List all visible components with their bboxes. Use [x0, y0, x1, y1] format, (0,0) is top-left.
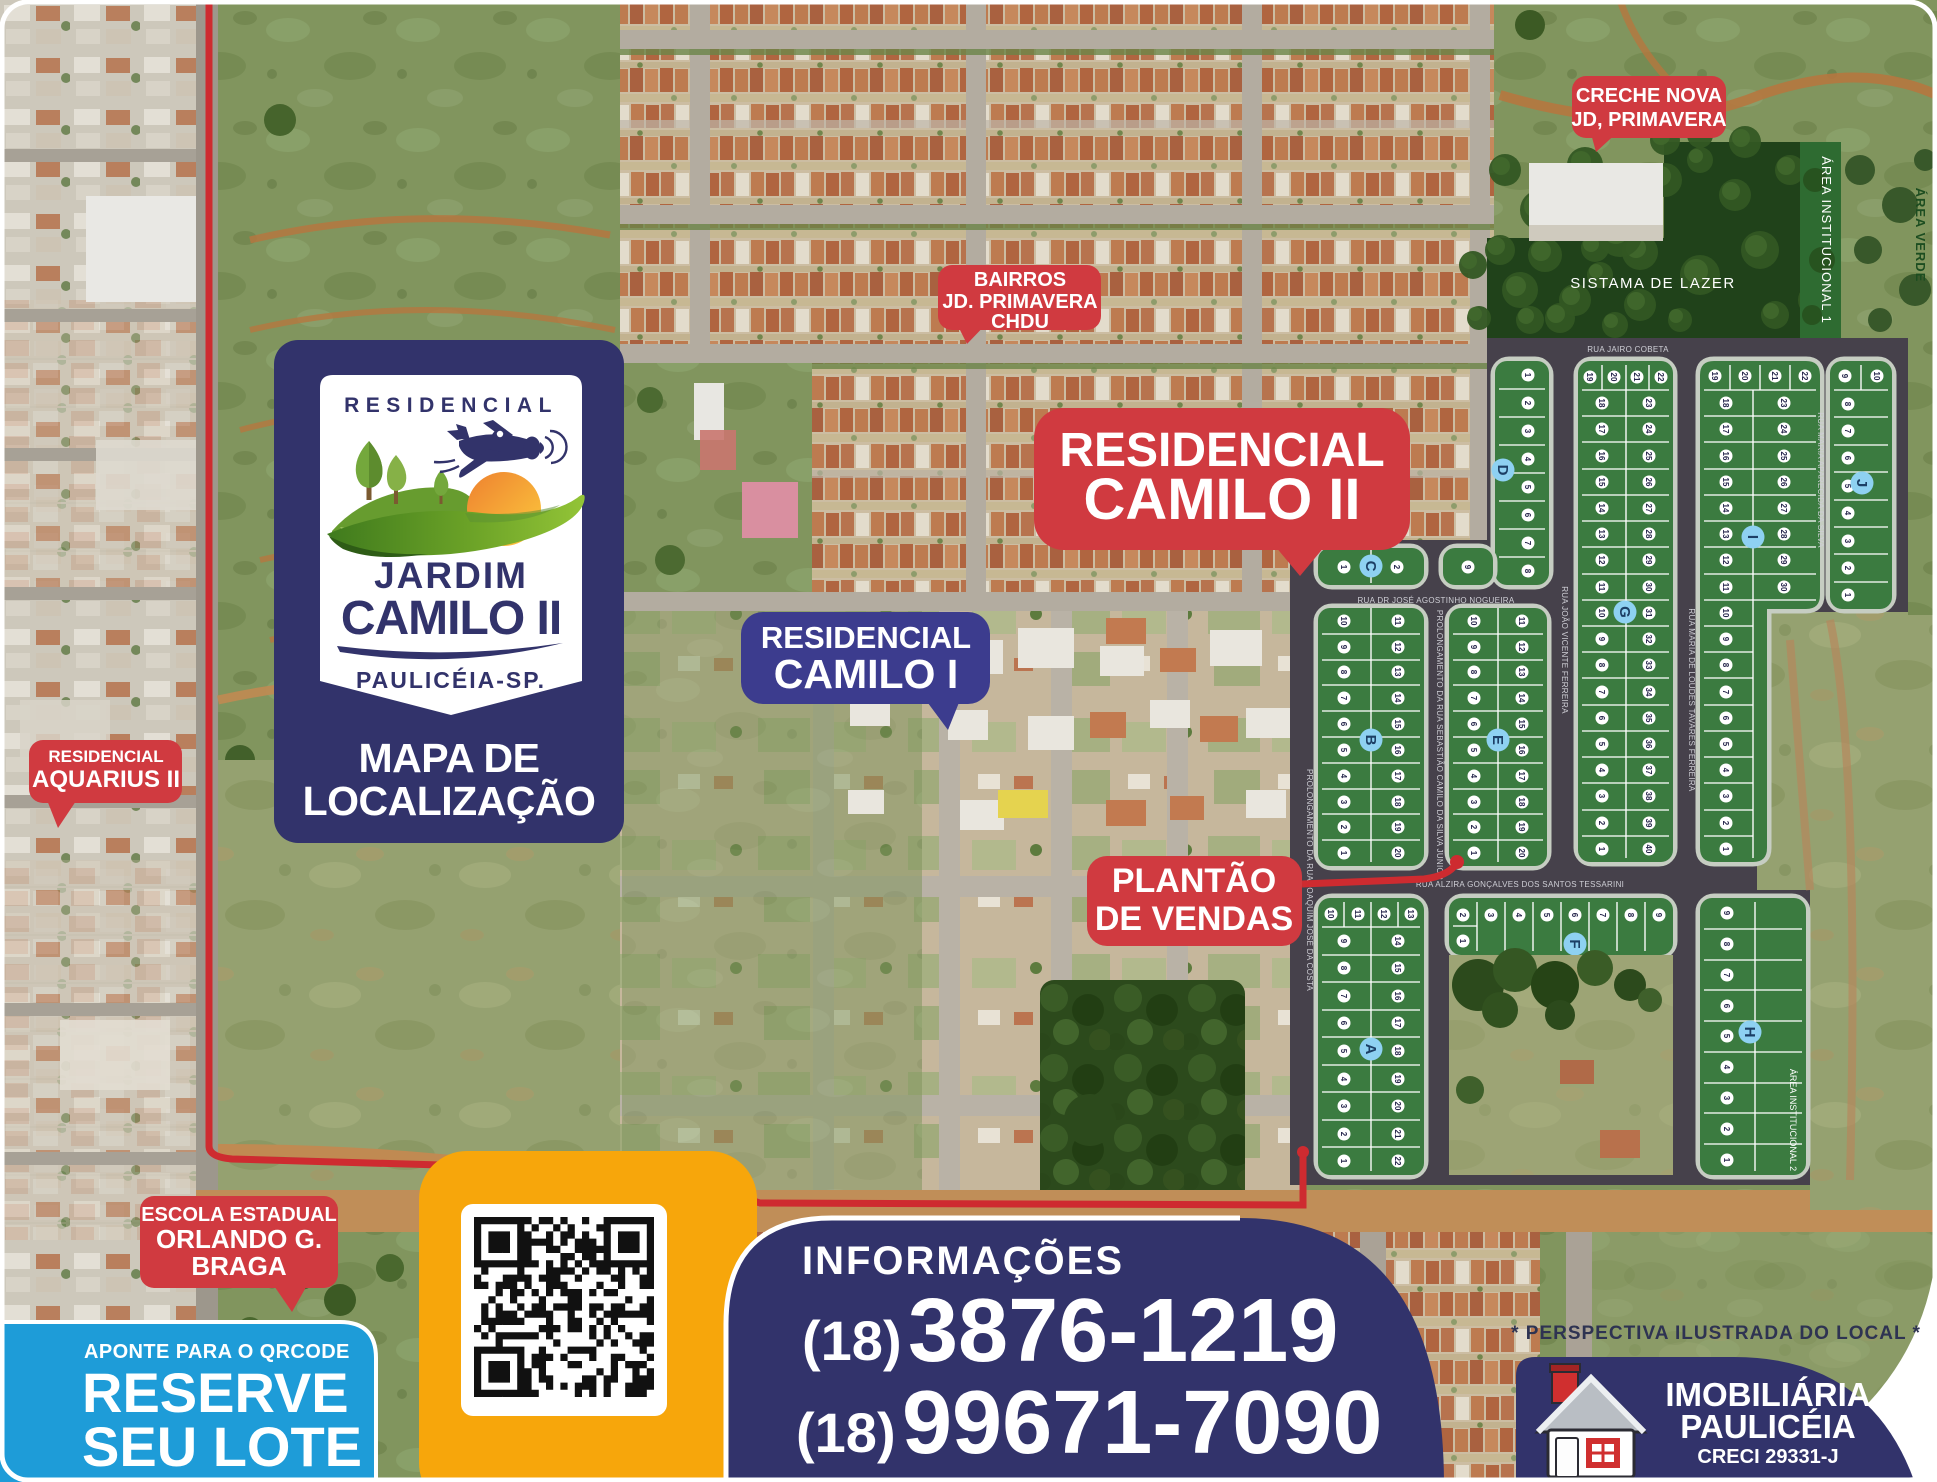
- svg-text:SISTAMA DE LAZER: SISTAMA DE LAZER: [1570, 275, 1735, 292]
- svg-text:4: 4: [1722, 1065, 1731, 1070]
- svg-text:35: 35: [1644, 714, 1653, 723]
- svg-text:10: 10: [1872, 372, 1881, 381]
- svg-text:26: 26: [1644, 478, 1653, 487]
- svg-text:14: 14: [1393, 694, 1402, 703]
- svg-text:8: 8: [1339, 670, 1348, 675]
- svg-text:99671-7090: 99671-7090: [902, 1373, 1382, 1473]
- svg-text:8: 8: [1721, 663, 1730, 668]
- svg-text:16: 16: [1721, 452, 1730, 461]
- svg-text:7: 7: [1843, 429, 1852, 434]
- svg-text:7: 7: [1339, 994, 1348, 999]
- svg-text:F: F: [1566, 939, 1583, 948]
- svg-text:13: 13: [1406, 910, 1415, 919]
- svg-text:6: 6: [1469, 722, 1478, 727]
- svg-text:10: 10: [1469, 617, 1478, 626]
- svg-text:10: 10: [1339, 617, 1348, 626]
- svg-text:1: 1: [1339, 1159, 1348, 1164]
- svg-text:6: 6: [1570, 913, 1579, 918]
- svg-text:2: 2: [1721, 821, 1730, 826]
- svg-text:18: 18: [1721, 399, 1730, 408]
- svg-text:5: 5: [1721, 742, 1730, 747]
- svg-text:(18): (18): [796, 1401, 896, 1464]
- svg-text:16: 16: [1597, 452, 1606, 461]
- svg-text:11: 11: [1721, 583, 1730, 592]
- svg-text:9: 9: [1339, 939, 1348, 944]
- svg-text:3: 3: [1523, 429, 1532, 434]
- svg-text:27: 27: [1779, 504, 1788, 513]
- svg-text:36: 36: [1644, 740, 1653, 749]
- svg-text:10: 10: [1597, 609, 1606, 618]
- svg-text:MAPA DE: MAPA DE: [359, 735, 540, 781]
- svg-text:ÁREA INSTITUCIONAL 1: ÁREA INSTITUCIONAL 1: [1819, 156, 1834, 324]
- svg-text:7: 7: [1597, 690, 1606, 695]
- svg-text:7: 7: [1523, 541, 1532, 546]
- svg-text:12: 12: [1393, 643, 1402, 652]
- svg-text:9: 9: [1469, 645, 1478, 650]
- svg-text:8: 8: [1523, 569, 1532, 574]
- svg-text:23: 23: [1644, 399, 1653, 408]
- svg-text:CRECHE NOVA: CRECHE NOVA: [1576, 85, 1722, 107]
- svg-text:29: 29: [1779, 556, 1788, 565]
- svg-text:3: 3: [1486, 913, 1495, 918]
- svg-text:5: 5: [1523, 485, 1532, 490]
- svg-text:1: 1: [1523, 373, 1532, 378]
- svg-text:7: 7: [1339, 696, 1348, 701]
- svg-text:4: 4: [1514, 913, 1523, 918]
- svg-text:22: 22: [1393, 1157, 1402, 1166]
- svg-text:8: 8: [1843, 402, 1852, 407]
- svg-text:1: 1: [1339, 851, 1348, 856]
- svg-text:2: 2: [1339, 825, 1348, 830]
- svg-text:25: 25: [1644, 452, 1653, 461]
- svg-text:7: 7: [1469, 696, 1478, 701]
- svg-text:6: 6: [1523, 513, 1532, 518]
- svg-text:4: 4: [1523, 457, 1532, 462]
- svg-text:5: 5: [1722, 1034, 1731, 1039]
- svg-text:JARDIM: JARDIM: [374, 555, 528, 596]
- svg-text:J: J: [1853, 479, 1870, 487]
- svg-text:17: 17: [1393, 1019, 1402, 1028]
- svg-text:3: 3: [1721, 794, 1730, 799]
- svg-text:7: 7: [1598, 913, 1607, 918]
- svg-text:17: 17: [1597, 425, 1606, 434]
- svg-text:18: 18: [1517, 798, 1526, 807]
- svg-text:14: 14: [1597, 504, 1606, 513]
- svg-text:17: 17: [1393, 772, 1402, 781]
- svg-text:28: 28: [1779, 530, 1788, 539]
- svg-text:JD. PRIMAVERA: JD. PRIMAVERA: [942, 291, 1097, 313]
- svg-text:17: 17: [1517, 772, 1526, 781]
- svg-text:15: 15: [1393, 720, 1402, 729]
- svg-text:40: 40: [1644, 845, 1653, 854]
- svg-text:9: 9: [1840, 374, 1849, 379]
- svg-text:8: 8: [1339, 966, 1348, 971]
- svg-text:RUA ALZIRA GONÇALVES DOS SANT: RUA ALZIRA GONÇALVES DOS SANTOS TESSARIN…: [1416, 880, 1624, 889]
- svg-text:I: I: [1744, 535, 1761, 539]
- svg-text:19: 19: [1393, 823, 1402, 832]
- svg-text:12: 12: [1597, 556, 1606, 565]
- svg-text:2: 2: [1722, 1127, 1731, 1132]
- svg-text:3: 3: [1339, 800, 1348, 805]
- svg-text:20: 20: [1393, 849, 1402, 858]
- svg-text:9: 9: [1339, 645, 1348, 650]
- svg-text:9: 9: [1654, 913, 1663, 918]
- svg-text:30: 30: [1644, 583, 1653, 592]
- svg-text:6: 6: [1597, 716, 1606, 721]
- svg-text:13: 13: [1597, 530, 1606, 539]
- svg-text:1: 1: [1843, 593, 1852, 598]
- svg-text:DE VENDAS: DE VENDAS: [1095, 900, 1293, 938]
- svg-text:22: 22: [1656, 373, 1665, 382]
- svg-text:CRECI 29331-J: CRECI 29331-J: [1697, 1446, 1838, 1468]
- svg-text:12: 12: [1379, 910, 1388, 919]
- svg-text:16: 16: [1393, 746, 1402, 755]
- svg-text:JD, PRIMAVERA: JD, PRIMAVERA: [1571, 109, 1726, 131]
- svg-text:27: 27: [1644, 504, 1653, 513]
- svg-text:9: 9: [1463, 565, 1472, 570]
- svg-text:17: 17: [1721, 425, 1730, 434]
- svg-text:RUA DR JOSÉ AGOSTINHO NOGUEI: RUA DR JOSÉ AGOSTINHO NOGUEIRA: [1357, 596, 1514, 605]
- svg-text:15: 15: [1597, 478, 1606, 487]
- svg-text:5: 5: [1469, 748, 1478, 753]
- svg-text:3: 3: [1469, 800, 1478, 805]
- svg-text:21: 21: [1393, 1130, 1402, 1139]
- svg-text:5: 5: [1597, 742, 1606, 747]
- svg-text:8: 8: [1597, 663, 1606, 668]
- svg-text:19: 19: [1517, 823, 1526, 832]
- svg-text:15: 15: [1517, 720, 1526, 729]
- svg-text:18: 18: [1393, 1047, 1402, 1056]
- svg-text:29: 29: [1644, 556, 1653, 565]
- svg-text:15: 15: [1393, 964, 1402, 973]
- svg-text:25: 25: [1779, 452, 1788, 461]
- svg-text:4: 4: [1843, 511, 1852, 516]
- svg-text:LOCALIZAÇÃO: LOCALIZAÇÃO: [303, 778, 596, 824]
- svg-text:12: 12: [1721, 556, 1730, 565]
- svg-text:20: 20: [1393, 1102, 1402, 1111]
- svg-text:10: 10: [1326, 910, 1335, 919]
- svg-text:ORLANDO G.: ORLANDO G.: [156, 1224, 322, 1254]
- svg-text:5: 5: [1339, 1049, 1348, 1054]
- svg-text:11: 11: [1353, 910, 1362, 919]
- svg-text:18: 18: [1393, 798, 1402, 807]
- svg-text:PAULICÉIA: PAULICÉIA: [1680, 1408, 1855, 1445]
- svg-text:7: 7: [1721, 690, 1730, 695]
- svg-text:12: 12: [1517, 643, 1526, 652]
- svg-text:4: 4: [1721, 768, 1730, 773]
- svg-text:H: H: [1741, 1027, 1758, 1038]
- svg-text:3: 3: [1339, 1104, 1348, 1109]
- svg-text:8: 8: [1722, 942, 1731, 947]
- svg-text:4: 4: [1339, 1077, 1348, 1082]
- svg-text:39: 39: [1644, 819, 1653, 828]
- svg-text:5: 5: [1339, 748, 1348, 753]
- svg-text:5: 5: [1542, 913, 1551, 918]
- svg-text:6: 6: [1339, 1021, 1348, 1026]
- svg-text:9: 9: [1597, 637, 1606, 642]
- svg-text:CAMILO I: CAMILO I: [774, 651, 958, 697]
- svg-text:* PERSPECTIVA ILUSTRADA DO LOC: * PERSPECTIVA ILUSTRADA DO LOCAL *: [1511, 1323, 1921, 1344]
- svg-text:20: 20: [1609, 373, 1618, 382]
- svg-text:A: A: [1362, 1044, 1379, 1055]
- svg-text:C: C: [1362, 561, 1379, 572]
- svg-text:6: 6: [1339, 722, 1348, 727]
- svg-text:ÁREA VERDE: ÁREA VERDE: [1913, 188, 1928, 283]
- svg-text:13: 13: [1721, 530, 1730, 539]
- svg-text:19: 19: [1393, 1075, 1402, 1084]
- svg-text:B: B: [1362, 735, 1379, 746]
- svg-text:1: 1: [1721, 847, 1730, 852]
- svg-text:ÁREA INSTITUCIONAL 2: ÁREA INSTITUCIONAL 2: [1788, 1069, 1798, 1171]
- svg-text:14: 14: [1517, 694, 1526, 703]
- svg-text:19: 19: [1710, 372, 1719, 381]
- svg-text:9: 9: [1721, 637, 1730, 642]
- svg-text:7: 7: [1722, 973, 1731, 978]
- svg-text:3: 3: [1597, 794, 1606, 799]
- svg-text:CAMILO II: CAMILO II: [1083, 467, 1360, 532]
- svg-text:2: 2: [1597, 821, 1606, 826]
- svg-text:D: D: [1494, 465, 1511, 476]
- svg-text:PAULICÉIA-SP.: PAULICÉIA-SP.: [356, 666, 546, 693]
- svg-text:20: 20: [1740, 372, 1749, 381]
- svg-text:1: 1: [1458, 939, 1467, 944]
- svg-text:AQUARIUS II: AQUARIUS II: [32, 766, 180, 793]
- svg-text:11: 11: [1393, 617, 1402, 626]
- svg-text:2: 2: [1843, 566, 1852, 571]
- svg-text:(18): (18): [802, 1309, 902, 1372]
- svg-text:INFORMAÇÕES: INFORMAÇÕES: [802, 1237, 1124, 1283]
- svg-text:20: 20: [1517, 849, 1526, 858]
- svg-text:BAIRROS: BAIRROS: [974, 269, 1066, 291]
- svg-text:E: E: [1489, 735, 1506, 745]
- svg-text:4: 4: [1597, 768, 1606, 773]
- svg-text:13: 13: [1393, 668, 1402, 677]
- svg-text:21: 21: [1770, 372, 1779, 381]
- svg-text:28: 28: [1644, 530, 1653, 539]
- svg-text:APONTE PARA O QRCODE: APONTE PARA O QRCODE: [84, 1341, 350, 1363]
- svg-text:24: 24: [1779, 425, 1788, 434]
- svg-text:38: 38: [1644, 792, 1653, 801]
- svg-text:BRAGA: BRAGA: [191, 1251, 287, 1281]
- svg-text:RUA MARIA APARECIDA DA SILVA: RUA MARIA APARECIDA DA SILVA: [1816, 412, 1825, 548]
- svg-text:RUA JAIRO COBETA: RUA JAIRO COBETA: [1587, 345, 1669, 354]
- svg-text:1: 1: [1339, 565, 1348, 570]
- svg-text:16: 16: [1517, 746, 1526, 755]
- svg-text:3: 3: [1722, 1096, 1731, 1101]
- svg-text:16: 16: [1393, 992, 1402, 1001]
- svg-text:11: 11: [1597, 583, 1606, 592]
- svg-text:14: 14: [1393, 937, 1402, 946]
- svg-text:ESCOLA ESTADUAL: ESCOLA ESTADUAL: [141, 1204, 337, 1226]
- svg-text:30: 30: [1779, 583, 1788, 592]
- svg-text:8: 8: [1469, 670, 1478, 675]
- svg-text:1: 1: [1597, 847, 1606, 852]
- svg-text:6: 6: [1843, 456, 1852, 461]
- svg-text:3876-1219: 3876-1219: [908, 1281, 1338, 1381]
- svg-text:34: 34: [1644, 688, 1653, 697]
- svg-text:11: 11: [1517, 617, 1526, 626]
- svg-text:6: 6: [1722, 1004, 1731, 1009]
- svg-text:13: 13: [1517, 668, 1526, 677]
- svg-text:1: 1: [1469, 851, 1478, 856]
- svg-text:21: 21: [1632, 373, 1641, 382]
- svg-text:2: 2: [1392, 565, 1401, 570]
- svg-text:26: 26: [1779, 478, 1788, 487]
- svg-text:1: 1: [1722, 1158, 1731, 1163]
- svg-text:31: 31: [1644, 609, 1653, 618]
- svg-text:4: 4: [1469, 774, 1478, 779]
- svg-text:9: 9: [1722, 911, 1731, 916]
- svg-text:10: 10: [1721, 609, 1730, 618]
- svg-text:6: 6: [1721, 716, 1730, 721]
- svg-text:8: 8: [1626, 913, 1635, 918]
- svg-text:37: 37: [1644, 766, 1653, 775]
- svg-text:PLANTÃO: PLANTÃO: [1112, 862, 1276, 900]
- svg-text:18: 18: [1597, 399, 1606, 408]
- svg-text:2: 2: [1458, 913, 1467, 918]
- svg-text:23: 23: [1779, 399, 1788, 408]
- svg-text:RUA JOÃO VICENTE FERREIRA: RUA JOÃO VICENTE FERREIRA: [1560, 586, 1569, 714]
- svg-text:2: 2: [1523, 401, 1532, 406]
- svg-text:15: 15: [1721, 478, 1730, 487]
- svg-text:4: 4: [1339, 774, 1348, 779]
- svg-text:33: 33: [1644, 661, 1653, 670]
- svg-text:G: G: [1616, 606, 1633, 618]
- svg-text:19: 19: [1585, 373, 1594, 382]
- svg-text:2: 2: [1469, 825, 1478, 830]
- svg-text:32: 32: [1644, 635, 1653, 644]
- svg-text:3: 3: [1843, 539, 1852, 544]
- svg-text:RUA MARIA DE LOUDES TAVARES F: RUA MARIA DE LOUDES TAVARES FERREIRA: [1687, 608, 1696, 791]
- svg-text:PROLONGAMENTO DA RUA SEBASTIÃO: PROLONGAMENTO DA RUA SEBASTIÃO CAMILO DA…: [1435, 610, 1444, 880]
- svg-text:RESIDENCIAL: RESIDENCIAL: [48, 747, 163, 766]
- svg-text:24: 24: [1644, 425, 1653, 434]
- svg-text:RESIDENCIAL: RESIDENCIAL: [344, 394, 558, 417]
- svg-text:2: 2: [1339, 1132, 1348, 1137]
- svg-text:SEU LOTE: SEU LOTE: [82, 1415, 362, 1478]
- svg-text:22: 22: [1800, 372, 1809, 381]
- svg-text:14: 14: [1721, 504, 1730, 513]
- svg-text:RESIDENCIAL: RESIDENCIAL: [761, 620, 971, 655]
- svg-text:CHDU: CHDU: [991, 311, 1049, 333]
- svg-text:CAMILO II: CAMILO II: [341, 592, 561, 645]
